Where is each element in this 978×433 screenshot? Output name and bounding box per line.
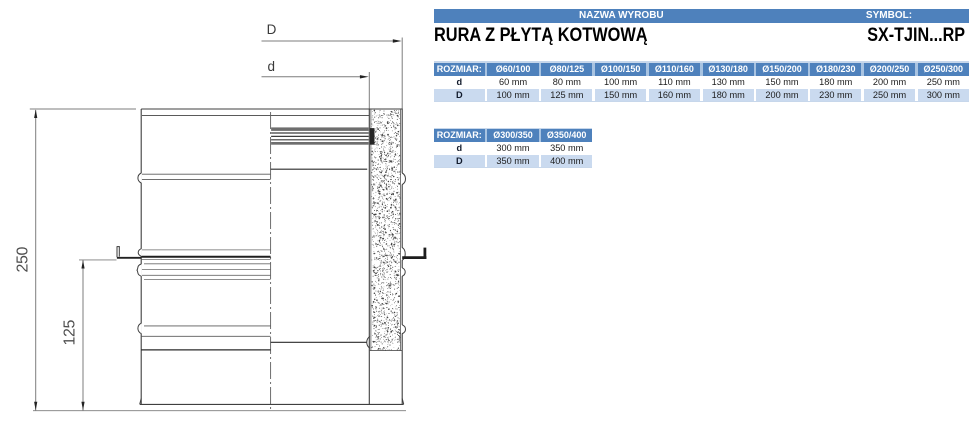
- svg-text:d: d: [268, 59, 276, 74]
- svg-text:125: 125: [62, 320, 79, 346]
- svg-text:D: D: [267, 22, 277, 37]
- svg-text:250: 250: [15, 247, 32, 273]
